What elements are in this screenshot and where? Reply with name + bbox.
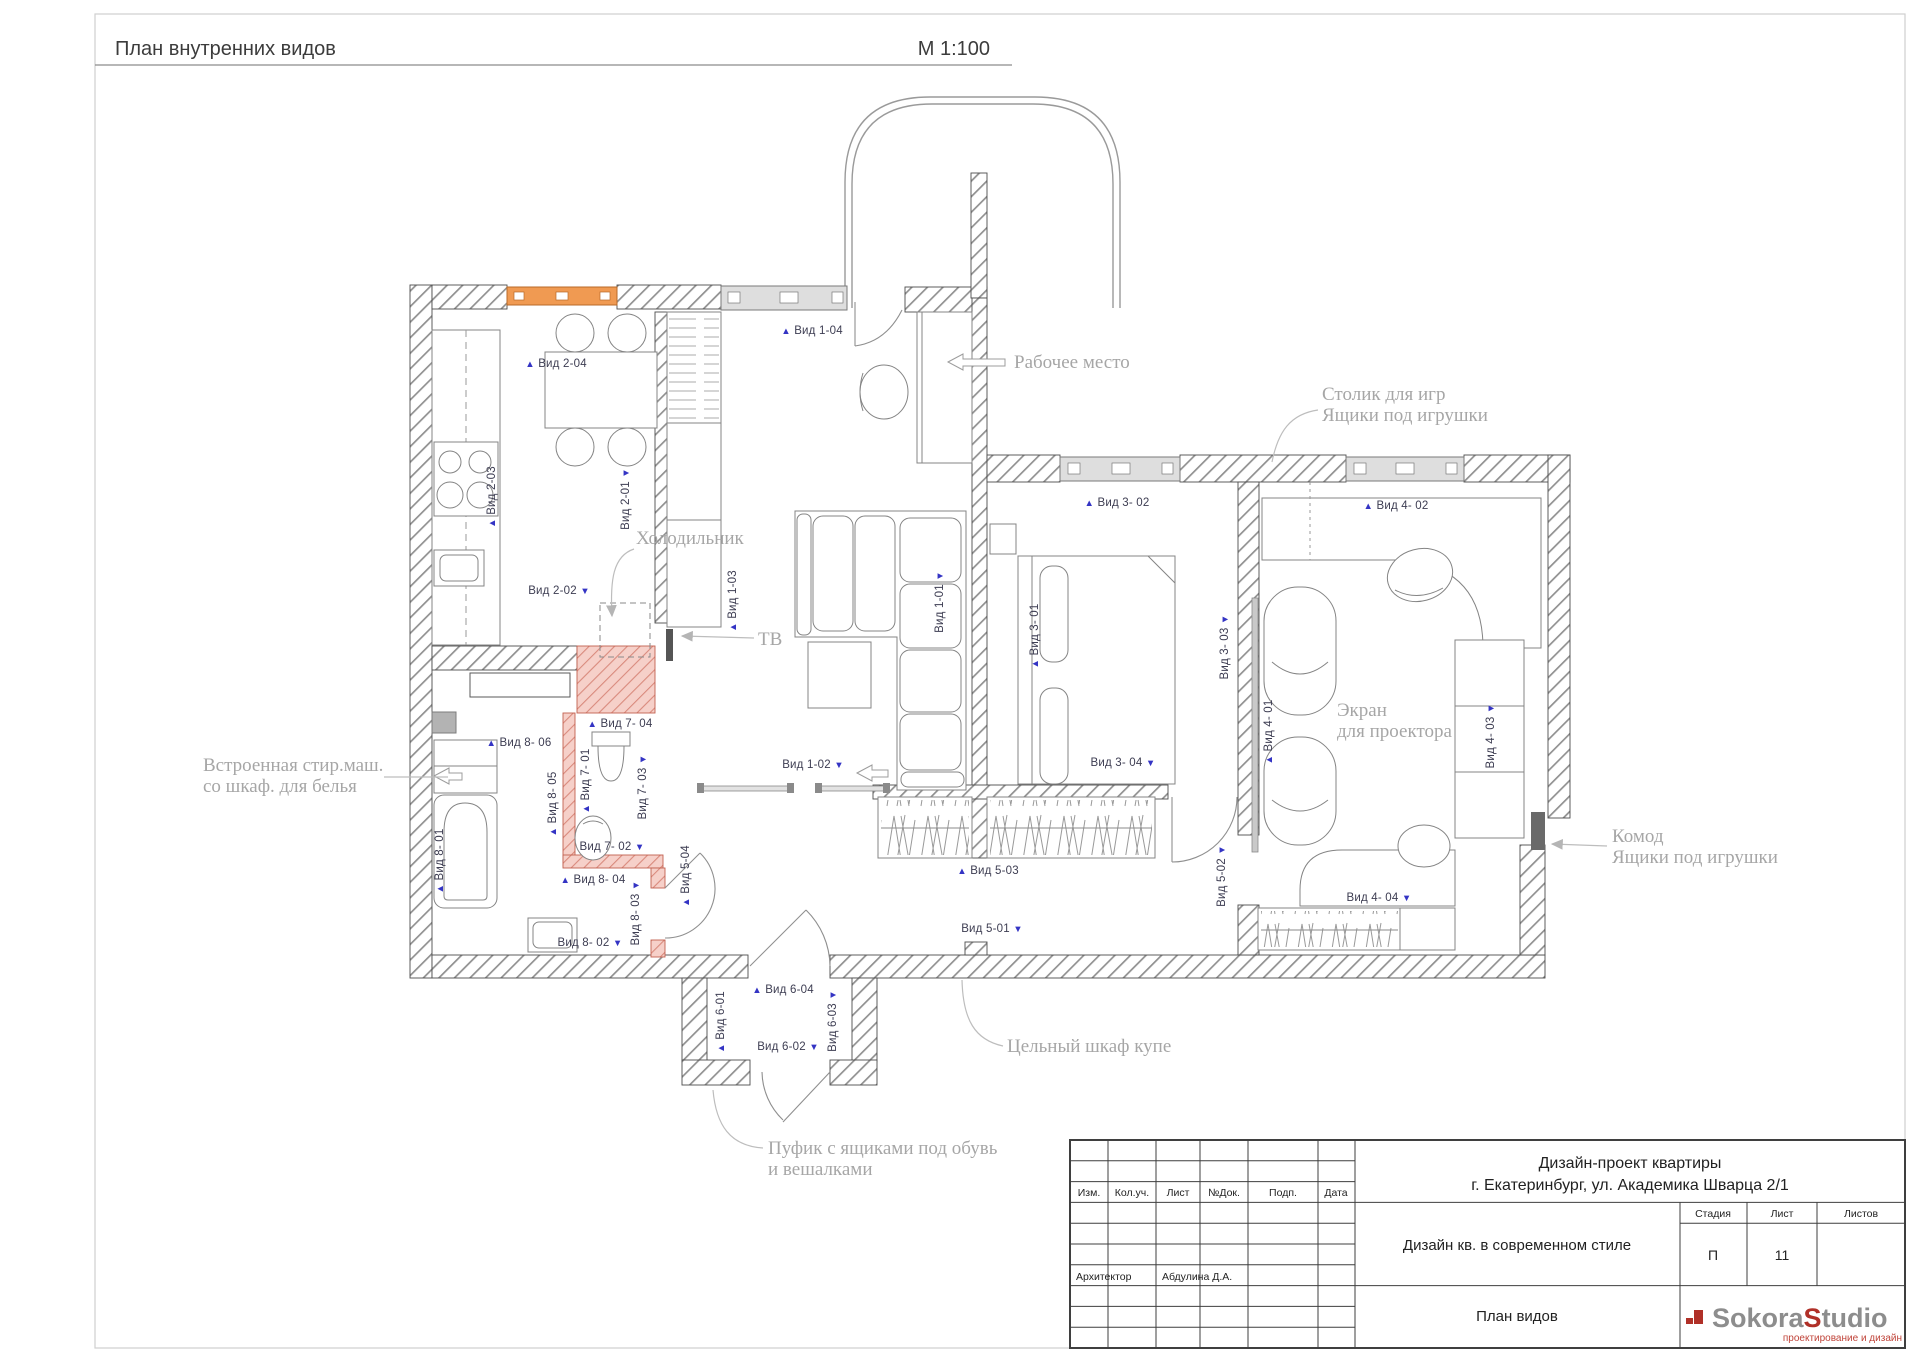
view-label: ▲ Вид 7- 01: [580, 748, 592, 813]
sheet-value: 11: [1775, 1247, 1790, 1263]
living-furniture: [666, 312, 972, 793]
annotation: ТВ: [758, 629, 782, 650]
door-right-wall: [1531, 812, 1545, 850]
hall-wardrobes: [878, 797, 1155, 858]
sheets-label: Листов: [1844, 1208, 1879, 1220]
drawing-name: План видов: [1476, 1308, 1558, 1325]
view-label: Вид 8- 03 ▼: [630, 880, 642, 945]
col-izm: Изм.: [1078, 1187, 1101, 1199]
pouf-1: [1264, 587, 1336, 715]
view-label: ▲ Вид 3- 02: [1084, 497, 1149, 509]
logo-text-s: S: [1804, 1303, 1822, 1333]
view-label: Вид 6-03 ▼: [827, 990, 839, 1052]
view-label: Вид 5-01 ▼: [961, 923, 1023, 935]
annotation: КомодЯщики под игрушки: [1612, 826, 1778, 868]
play-chair-2: [1398, 825, 1450, 867]
view-label: ▲ Вид 1-03: [727, 570, 739, 632]
view-label: ▲ Вид 8- 04: [560, 874, 625, 886]
playroom-furniture: [1252, 482, 1541, 950]
drawing-sheet: План внутренних видов М 1:100: [0, 0, 1920, 1358]
logo-text-sokora: Sokora: [1712, 1303, 1805, 1333]
duct-block: [432, 712, 456, 733]
view-label: ▲ Вид 8- 05: [547, 771, 559, 836]
annotation: Холодильник: [636, 528, 745, 549]
annotation: Экрандля проектора: [1337, 700, 1453, 742]
view-label: Вид 4- 04 ▼: [1346, 892, 1411, 904]
coffee-table: [808, 642, 871, 708]
stage-value: П: [1708, 1247, 1718, 1263]
col-dok: №Док.: [1208, 1187, 1240, 1199]
architect-name: Абдулина Д.А.: [1162, 1271, 1232, 1283]
view-label: ▲ Вид 6-01: [715, 991, 727, 1053]
view-label: ▲ Вид 8- 01: [434, 828, 446, 893]
annotation: Рабочее место: [1014, 352, 1130, 373]
stage-label: Стадия: [1695, 1208, 1731, 1220]
annotation: Столик для игрЯщики под игрушки: [1322, 384, 1488, 426]
logo-text-tudio: tudio: [1822, 1303, 1888, 1333]
col-data: Дата: [1324, 1187, 1347, 1199]
svg-text:SokoraStudio: SokoraStudio: [1712, 1303, 1888, 1333]
logo-tagline: проектирование и дизайн: [1783, 1333, 1902, 1344]
view-label: Вид 2-02 ▼: [528, 585, 590, 597]
desk-chair: [860, 365, 908, 419]
col-koluch: Кол.уч.: [1115, 1187, 1149, 1199]
col-list: Лист: [1167, 1187, 1190, 1199]
floor-plan-canvas: План внутренних видов М 1:100: [0, 0, 1920, 1358]
view-label: ▲ Вид 1-04: [781, 325, 843, 337]
view-label: Вид 5-02 ▼: [1216, 845, 1228, 907]
new-walls: [563, 646, 665, 957]
project-name-1: Дизайн-проект квартиры: [1539, 1155, 1722, 1172]
view-label: ▲ Вид 3- 01: [1029, 603, 1041, 668]
view-label: Вид 1-01 ▼: [934, 571, 946, 633]
sheet-scale: М 1:100: [918, 38, 990, 60]
title-block: Изм. Кол.уч. Лист №Док. Подп. Дата Дизай…: [1070, 1140, 1905, 1348]
view-label: Вид 4- 03 ▼: [1485, 703, 1497, 768]
annotation: Пуфик с ящиками под обувьи вешалками: [768, 1138, 998, 1180]
sink: [575, 816, 611, 860]
view-label: ▲ Вид 7- 04: [587, 718, 652, 730]
logo-icon: [1686, 1318, 1693, 1324]
view-label: ▲ Вид 8- 06: [486, 737, 551, 749]
tv: [666, 629, 673, 661]
sheet-label: Лист: [1771, 1208, 1794, 1220]
view-label: ▲ Вид 5-03: [957, 865, 1019, 877]
view-label: ▲ Вид 5-04: [680, 845, 692, 907]
sheet-title: План внутренних видов: [115, 38, 336, 60]
lintel: [470, 673, 570, 697]
logo-icon: [1694, 1310, 1703, 1324]
nightstand: [990, 524, 1016, 554]
projector-screen: [1252, 598, 1258, 852]
view-label: ▲ Вид 4- 02: [1363, 500, 1428, 512]
view-label: Вид 3- 04 ▼: [1090, 757, 1155, 769]
view-label: ▲ Вид 2-04: [525, 358, 587, 370]
view-label: Вид 7- 02 ▼: [579, 841, 644, 853]
view-label: Вид 2-01 ▼: [620, 468, 632, 530]
doc-title: Дизайн кв. в современном стиле: [1403, 1237, 1631, 1254]
view-label: Вид 3- 03 ▼: [1219, 614, 1231, 679]
project-name-2: г. Екатеринбург, ул. Академика Шварца 2/…: [1471, 1177, 1789, 1194]
view-label: Вид 6-02 ▼: [757, 1041, 819, 1053]
annotation: Встроенная стир.маш.со шкаф. для белья: [203, 755, 383, 797]
view-label: ▲ Вид 4- 01: [1263, 699, 1275, 764]
view-label: ▲ Вид 6-04: [752, 984, 814, 996]
desk: [917, 312, 972, 463]
toilet: [592, 732, 630, 746]
view-label: Вид 8- 02 ▼: [557, 937, 622, 949]
view-label: Вид 1-02 ▼: [782, 759, 844, 771]
col-podp: Подп.: [1269, 1187, 1297, 1199]
bedroom-furniture: [990, 524, 1175, 784]
role-label: Архитектор: [1076, 1271, 1132, 1283]
view-label: ▲ Вид 2-03: [486, 466, 498, 528]
view-label: Вид 7- 03 ▼: [637, 754, 649, 819]
annotation: Цельный шкаф купе: [1007, 1036, 1171, 1057]
entry-arrow: [857, 765, 888, 781]
